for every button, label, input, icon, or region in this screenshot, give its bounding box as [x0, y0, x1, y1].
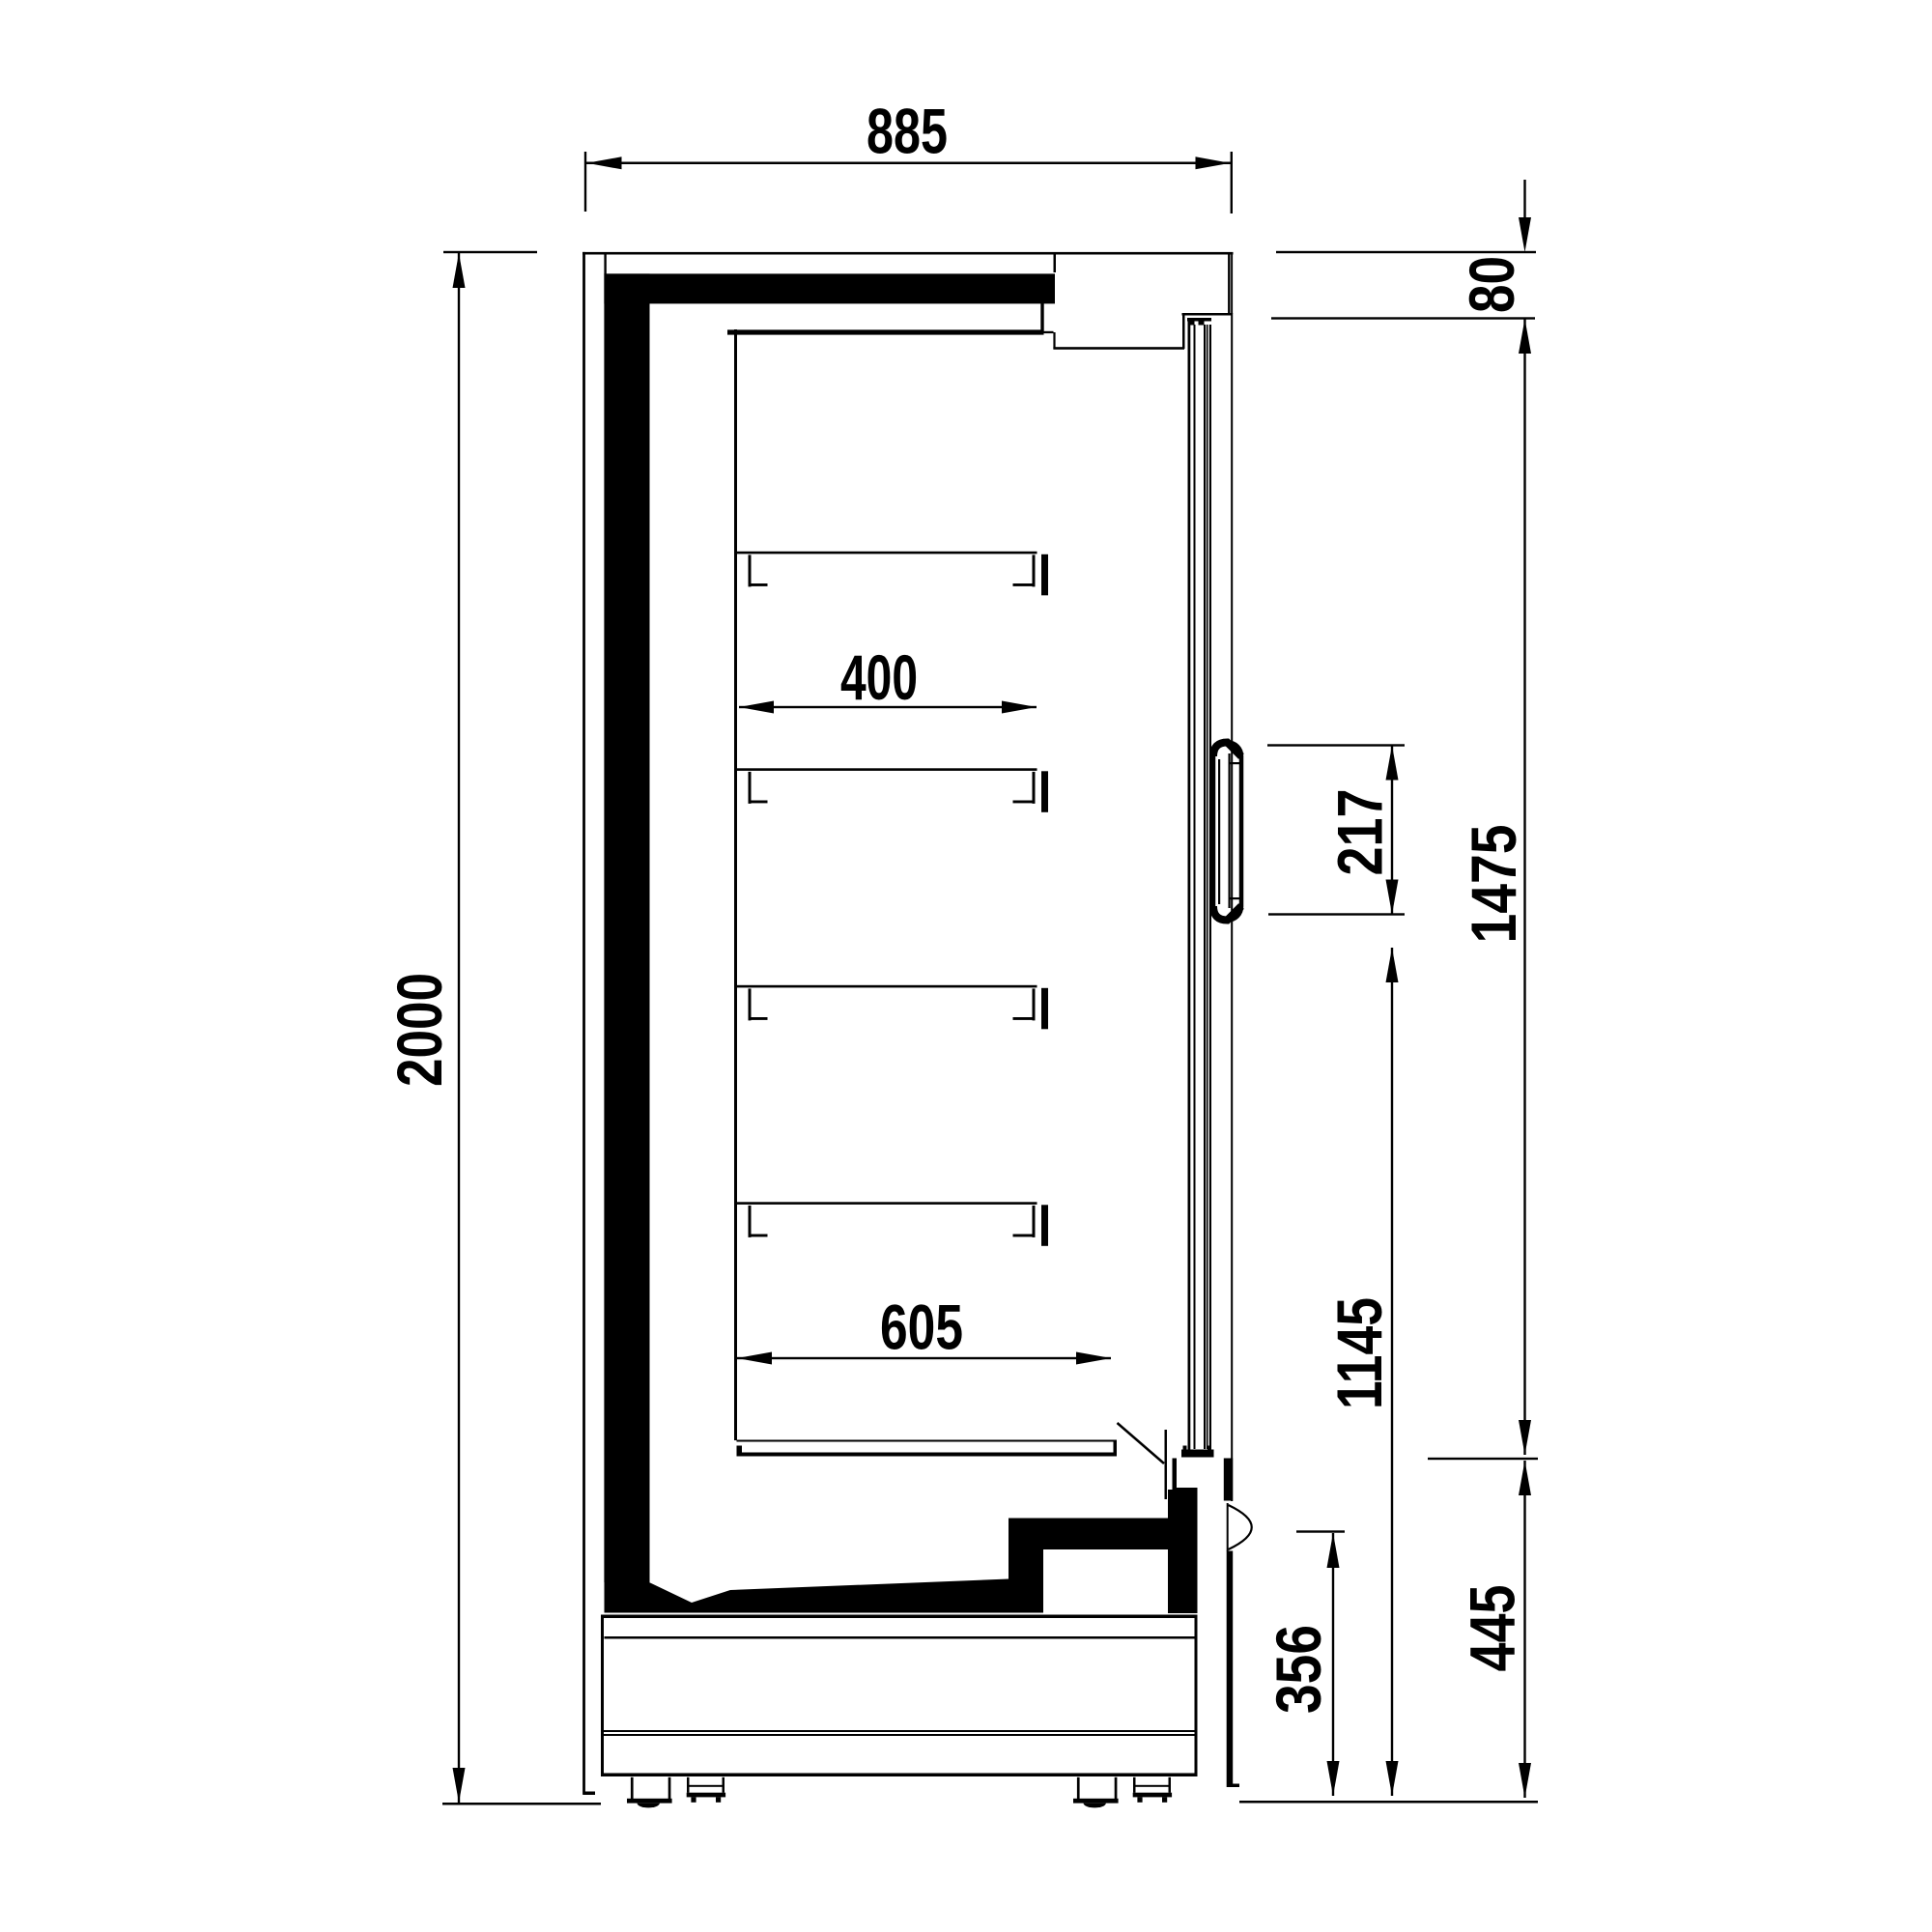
svg-text:356: 356 — [1263, 1625, 1334, 1714]
svg-text:217: 217 — [1324, 789, 1396, 876]
svg-text:885: 885 — [867, 96, 948, 167]
svg-text:400: 400 — [840, 641, 918, 713]
svg-text:605: 605 — [880, 1292, 963, 1363]
svg-text:80: 80 — [1456, 256, 1527, 313]
svg-text:1475: 1475 — [1458, 825, 1529, 944]
svg-text:2000: 2000 — [384, 973, 455, 1087]
svg-text:1145: 1145 — [1323, 1297, 1395, 1409]
svg-text:445: 445 — [1457, 1585, 1528, 1672]
